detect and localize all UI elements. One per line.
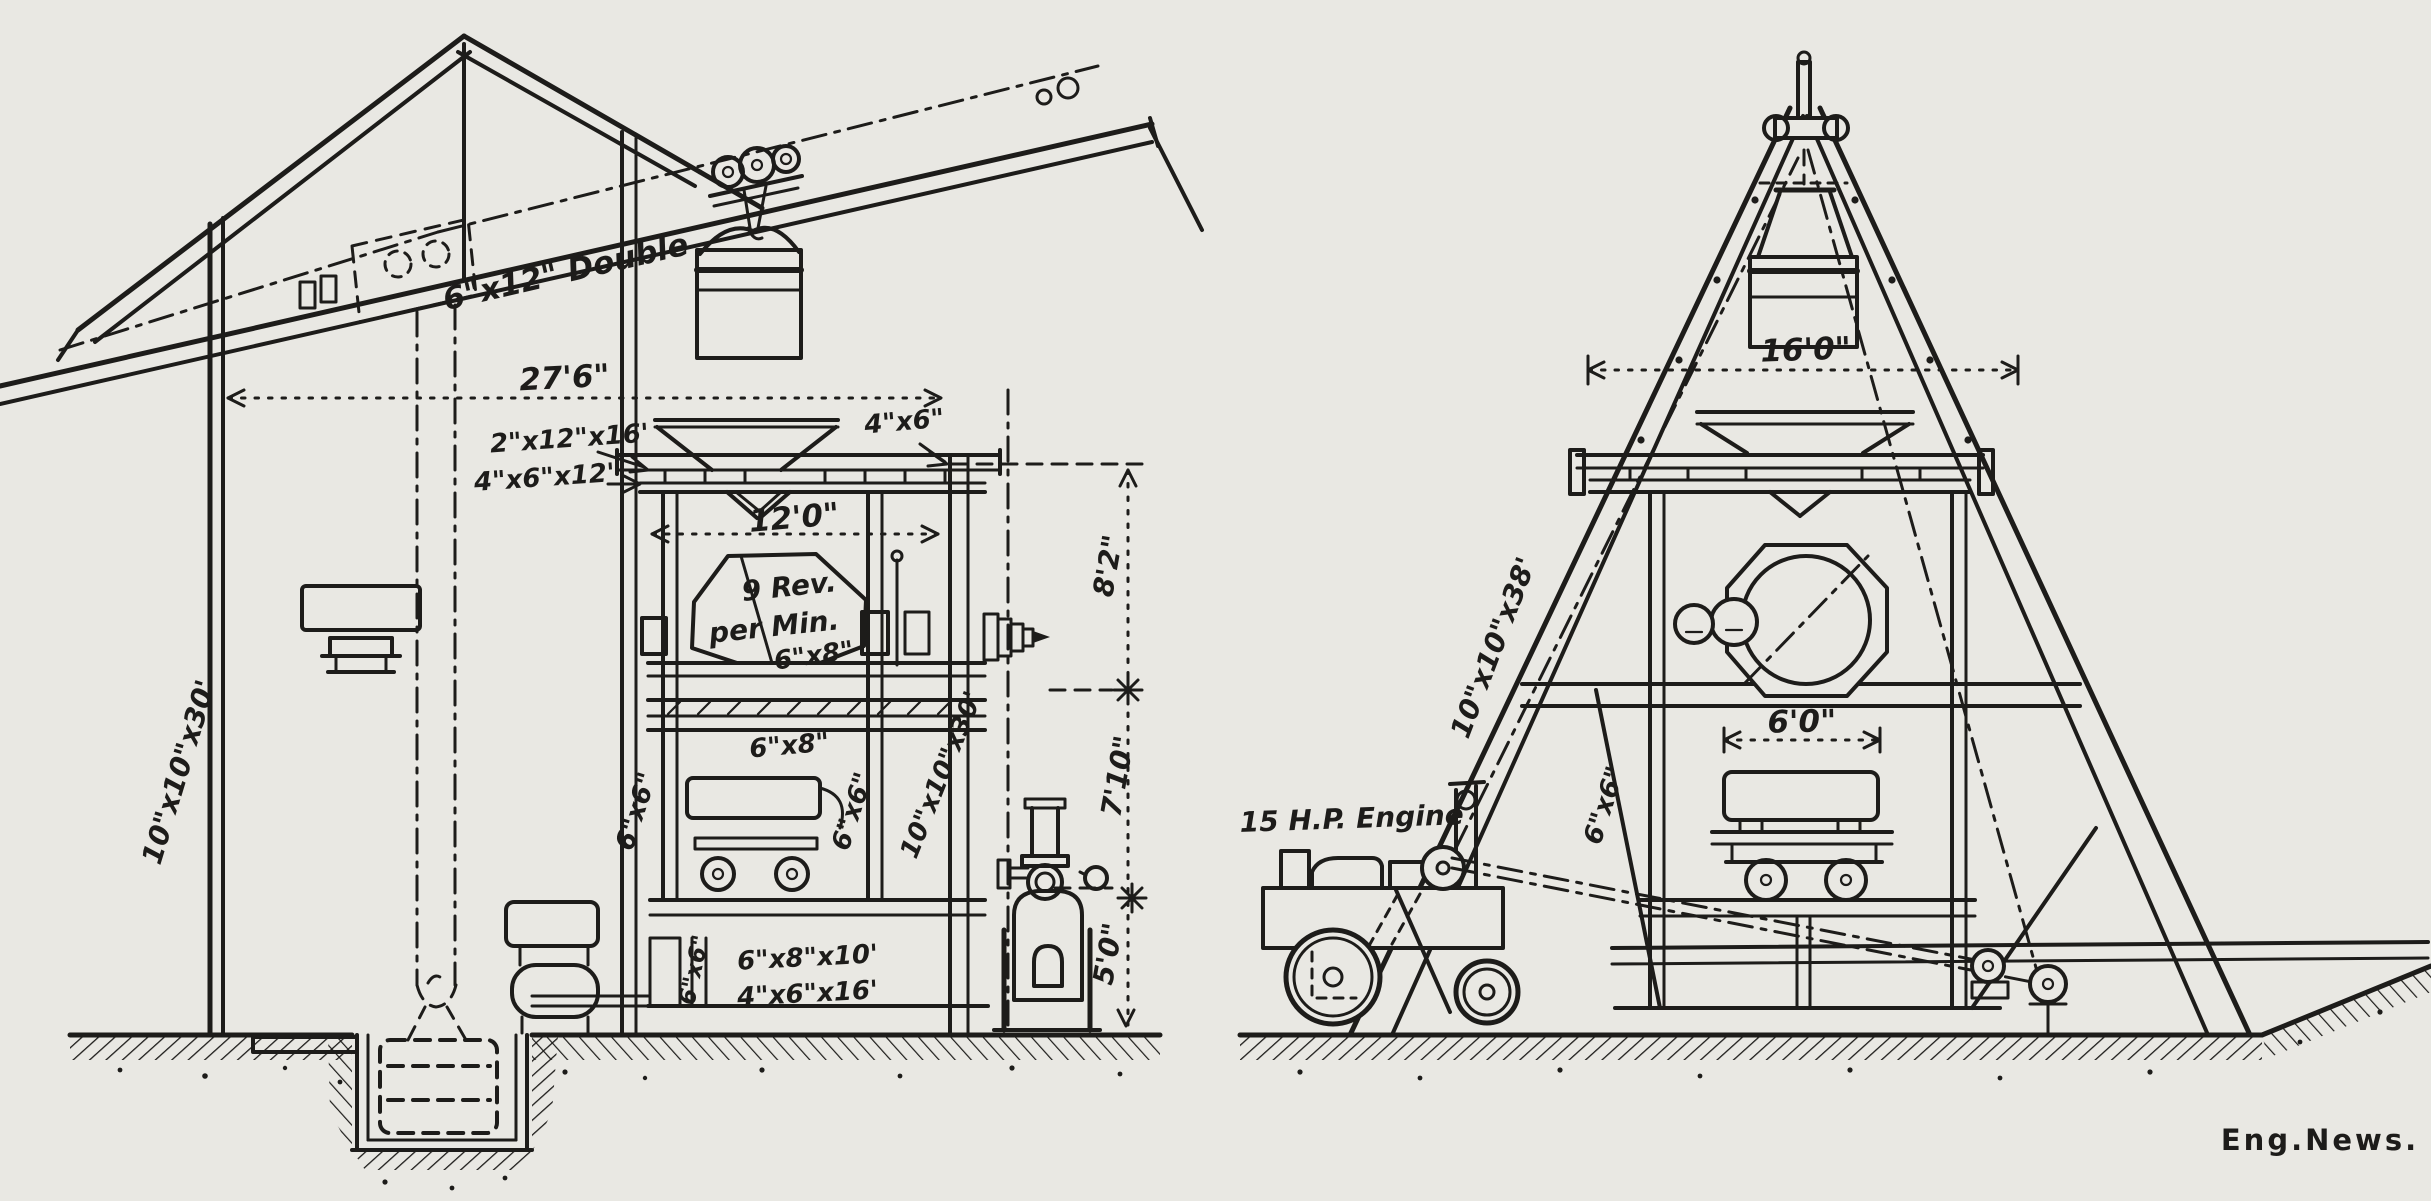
publication-credit: Eng.News. <box>2221 1123 2419 1157</box>
drawing-sheet: 27'6" <box>0 0 2431 1201</box>
flywheel <box>1286 930 1380 1024</box>
label-cart-span: 6'0" <box>1767 703 1836 740</box>
label-frame-width: 16'0" <box>1760 330 1852 369</box>
tick-star-lower <box>1118 884 1146 912</box>
engineering-drawing: 27'6" <box>0 0 2431 1201</box>
tick-star-upper <box>1114 676 1142 704</box>
drum-roller-small <box>1675 605 1713 643</box>
label-span-dim: 27'6" <box>518 358 610 399</box>
paper-background <box>0 0 2431 1201</box>
drum-roller-large <box>1711 599 1757 645</box>
